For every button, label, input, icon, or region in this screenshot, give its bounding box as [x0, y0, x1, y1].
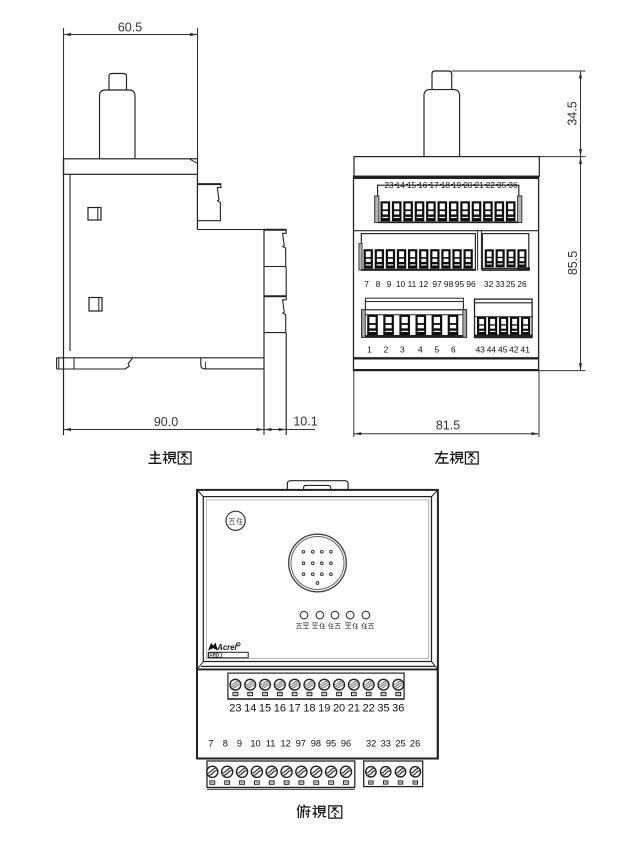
- svg-text:98: 98: [311, 739, 321, 749]
- svg-text:23: 23: [229, 702, 241, 714]
- svg-text:10: 10: [250, 739, 260, 749]
- svg-text:7: 7: [208, 739, 213, 749]
- svg-text:23: 23: [384, 181, 394, 190]
- svg-text:6: 6: [451, 345, 456, 355]
- svg-text:16: 16: [418, 181, 428, 190]
- svg-text:33: 33: [495, 279, 505, 289]
- svg-text:18: 18: [303, 702, 315, 714]
- svg-text:95: 95: [455, 279, 465, 289]
- svg-text:26: 26: [517, 279, 527, 289]
- svg-text:36: 36: [508, 181, 518, 190]
- svg-text:5: 5: [434, 345, 439, 355]
- svg-text:11: 11: [266, 739, 276, 749]
- svg-text:3: 3: [400, 345, 405, 355]
- svg-text:12: 12: [281, 739, 291, 749]
- svg-text:44: 44: [487, 345, 497, 355]
- svg-text:95: 95: [326, 739, 336, 749]
- svg-text:17: 17: [430, 181, 440, 190]
- svg-text:32: 32: [366, 739, 376, 749]
- svg-text:25: 25: [506, 279, 516, 289]
- svg-text:21: 21: [348, 702, 360, 714]
- svg-text:98: 98: [444, 279, 454, 289]
- svg-text:90.0: 90.0: [154, 415, 178, 429]
- svg-text:42: 42: [509, 345, 519, 355]
- svg-text:32: 32: [484, 279, 494, 289]
- svg-text:14: 14: [396, 181, 406, 190]
- svg-text:19: 19: [452, 181, 462, 190]
- svg-text:22: 22: [363, 702, 375, 714]
- svg-text:26: 26: [410, 739, 420, 749]
- svg-text:9: 9: [387, 279, 392, 289]
- svg-text:21: 21: [475, 181, 485, 190]
- svg-text:15: 15: [259, 702, 271, 714]
- svg-text:10.1: 10.1: [293, 415, 317, 429]
- svg-text:14: 14: [244, 702, 256, 714]
- svg-text:8: 8: [223, 739, 228, 749]
- svg-text:20: 20: [463, 181, 473, 190]
- svg-text:25: 25: [395, 739, 405, 749]
- svg-text:97: 97: [432, 279, 442, 289]
- svg-text:96: 96: [466, 279, 476, 289]
- svg-text:81.5: 81.5: [436, 419, 460, 433]
- svg-text:15: 15: [407, 181, 417, 190]
- svg-text:85.5: 85.5: [566, 251, 580, 275]
- svg-text:17: 17: [289, 702, 301, 714]
- svg-text:33: 33: [381, 739, 391, 749]
- svg-text:9: 9: [237, 739, 242, 749]
- svg-text:18: 18: [441, 181, 451, 190]
- svg-text:Acrel: Acrel: [216, 643, 237, 652]
- svg-text:8: 8: [376, 279, 381, 289]
- svg-text:34.5: 34.5: [566, 101, 580, 125]
- svg-text:2: 2: [384, 345, 389, 355]
- svg-text:35: 35: [377, 702, 389, 714]
- svg-text:4: 4: [418, 345, 423, 355]
- svg-text:45: 45: [498, 345, 508, 355]
- svg-text:43: 43: [476, 345, 486, 355]
- svg-text:20: 20: [333, 702, 345, 714]
- svg-text:ARD: ARD: [210, 653, 220, 658]
- svg-text:12: 12: [419, 279, 429, 289]
- svg-text:7: 7: [364, 279, 369, 289]
- svg-text:22: 22: [486, 181, 496, 190]
- svg-text:19: 19: [318, 702, 330, 714]
- svg-text:60.5: 60.5: [118, 21, 142, 35]
- svg-text:36: 36: [392, 702, 404, 714]
- svg-text:1: 1: [367, 345, 372, 355]
- svg-text:35: 35: [497, 181, 507, 190]
- svg-text:16: 16: [274, 702, 286, 714]
- svg-text:96: 96: [341, 739, 351, 749]
- svg-text:11: 11: [408, 279, 417, 289]
- svg-text:41: 41: [521, 345, 531, 355]
- svg-text:97: 97: [296, 739, 306, 749]
- svg-text:10: 10: [396, 279, 406, 289]
